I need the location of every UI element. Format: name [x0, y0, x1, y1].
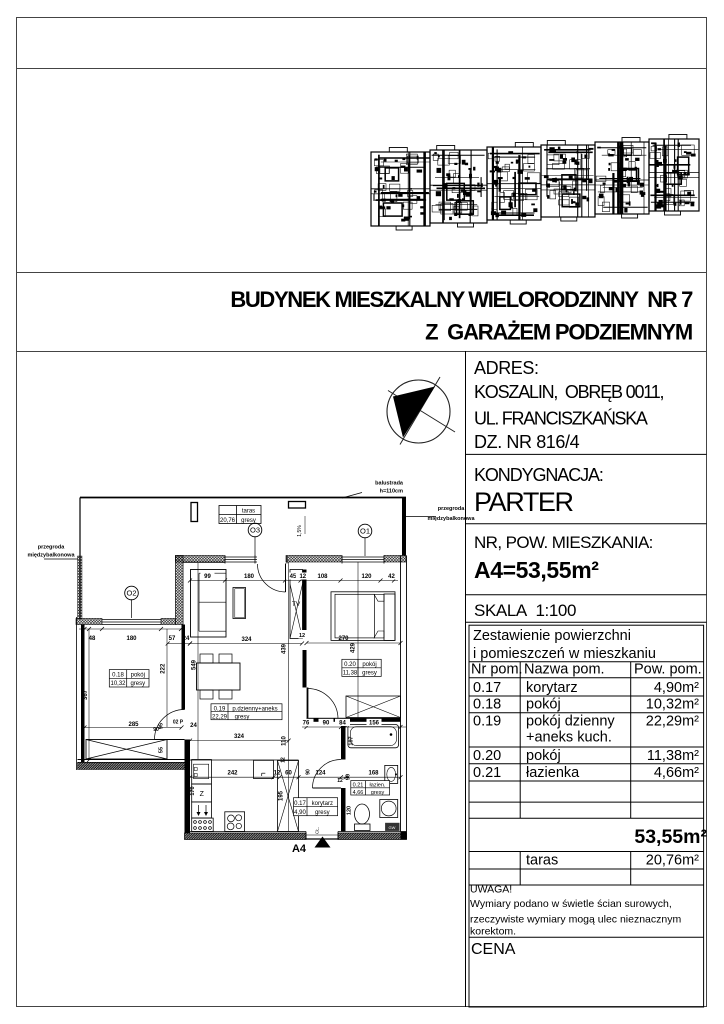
svg-text:11,38: 11,38	[343, 671, 358, 677]
svg-text:53,55m²: 53,55m²	[634, 826, 707, 848]
svg-text:balustrada: balustrada	[375, 481, 404, 487]
svg-text:367: 367	[83, 689, 89, 700]
svg-text:170: 170	[190, 786, 196, 795]
svg-text:12: 12	[281, 757, 287, 763]
svg-text:95: 95	[159, 723, 165, 729]
svg-text:439: 439	[282, 643, 288, 654]
svg-text:42: 42	[388, 574, 395, 580]
svg-text:korektom.: korektom.	[470, 926, 516, 938]
svg-text:22,29m²: 22,29m²	[646, 714, 699, 730]
svg-text:0.17: 0.17	[473, 680, 501, 696]
svg-text:4,90: 4,90	[294, 810, 306, 816]
svg-text:0.19: 0.19	[473, 714, 501, 730]
svg-text:1,5%: 1,5%	[297, 525, 303, 537]
svg-text:4,90m²: 4,90m²	[654, 680, 699, 696]
svg-text:120: 120	[361, 574, 372, 580]
svg-text:0.18: 0.18	[473, 697, 501, 713]
svg-text:gresy: gresy	[362, 671, 377, 677]
svg-text:10,32: 10,32	[110, 681, 126, 687]
svg-text:24: 24	[190, 723, 197, 729]
svg-text:gresy: gresy	[235, 714, 250, 720]
svg-text:BUDYNEK MIESZKALNY WIELORODZIN: BUDYNEK MIESZKALNY WIELORODZINNY NR 7	[230, 287, 693, 312]
svg-text:0.21: 0.21	[353, 782, 364, 788]
svg-text:124: 124	[315, 771, 326, 777]
svg-text:korytarz: korytarz	[526, 680, 578, 696]
svg-text:CŁ.: CŁ.	[315, 827, 320, 834]
svg-text:pokój: pokój	[526, 697, 561, 713]
svg-text:108: 108	[317, 574, 328, 580]
svg-text:pokój: pokój	[131, 673, 145, 679]
svg-text:KOSZALIN, OBRĘB 0011,: KOSZALIN, OBRĘB 0011,	[474, 382, 664, 402]
svg-text:55: 55	[159, 747, 165, 753]
svg-text:pokój: pokój	[362, 662, 376, 668]
svg-text:222: 222	[161, 663, 167, 674]
svg-text:84: 84	[339, 721, 346, 727]
svg-text:120: 120	[347, 806, 353, 815]
svg-text:rzeczywiste wymiary mogą ulec: rzeczywiste wymiary mogą ulec nieznaczny…	[470, 914, 681, 926]
svg-text:Z GARAŻEM PODZIEMNYM: Z GARAŻEM PODZIEMNYM	[425, 320, 692, 345]
svg-text:4,66: 4,66	[353, 790, 364, 796]
svg-text:242: 242	[227, 771, 238, 777]
svg-text:CENA: CENA	[471, 941, 516, 958]
svg-text:02 P: 02 P	[173, 720, 184, 726]
svg-text:90: 90	[153, 727, 159, 733]
svg-text:NR, POW. MIESZKANIA:: NR, POW. MIESZKANIA:	[474, 533, 653, 552]
svg-text:180: 180	[126, 636, 137, 642]
svg-text:0.17: 0.17	[294, 801, 306, 807]
svg-text:168: 168	[368, 771, 379, 777]
svg-text:taras: taras	[526, 853, 558, 869]
svg-text:20,76m²: 20,76m²	[646, 853, 699, 869]
svg-text:4,66m²: 4,66m²	[654, 765, 699, 781]
svg-text:DZ. NR 816/4: DZ. NR 816/4	[474, 432, 580, 452]
svg-text:90: 90	[306, 769, 312, 775]
svg-text:324: 324	[234, 734, 245, 740]
svg-text:107: 107	[349, 736, 355, 745]
svg-text:O1: O1	[360, 527, 370, 536]
svg-text:90: 90	[323, 721, 330, 727]
svg-text:549: 549	[191, 659, 197, 670]
svg-text:0.20: 0.20	[473, 748, 501, 764]
svg-text:270: 270	[338, 636, 349, 642]
svg-text:324: 324	[241, 637, 252, 643]
svg-text:p.dzienny+aneks: p.dzienny+aneks	[232, 706, 277, 712]
svg-text:429: 429	[351, 642, 357, 653]
svg-text:Pow. pom.: Pow. pom.	[634, 662, 702, 678]
svg-text:0.21: 0.21	[473, 765, 501, 781]
svg-text:pokój dzienny: pokój dzienny	[526, 714, 615, 730]
svg-text:międzybalkonowa: międzybalkonowa	[427, 516, 475, 522]
svg-text:A4: A4	[292, 843, 307, 855]
svg-text:UWAGA!: UWAGA!	[470, 884, 512, 896]
svg-text:10,32m²: 10,32m²	[646, 697, 699, 713]
svg-text:57: 57	[169, 636, 176, 642]
svg-text:180: 180	[244, 574, 255, 580]
svg-text:99: 99	[204, 574, 211, 580]
svg-text:0.19: 0.19	[214, 706, 226, 712]
svg-text:Nazwa pom.: Nazwa pom.	[524, 662, 605, 678]
svg-text:0.18: 0.18	[112, 673, 124, 679]
svg-text:O3: O3	[250, 526, 260, 535]
svg-text:KONDYGNACJA:: KONDYGNACJA:	[474, 465, 603, 485]
svg-text:gresy: gresy	[371, 790, 385, 796]
svg-text:Zestawienie powierzchni: Zestawienie powierzchni	[473, 628, 631, 644]
svg-text:SKALA 1:100: SKALA 1:100	[474, 601, 576, 620]
svg-text:TV: TV	[292, 601, 301, 608]
svg-text:12: 12	[299, 574, 306, 580]
svg-text:PARTER: PARTER	[474, 487, 574, 517]
svg-text:i pomieszczeń w mieszkaniu: i pomieszczeń w mieszkaniu	[473, 646, 656, 662]
svg-text:Nr pom.: Nr pom.	[471, 662, 523, 678]
svg-text:taras: taras	[242, 509, 255, 515]
svg-text:12: 12	[274, 771, 281, 777]
svg-text:20,76: 20,76	[220, 518, 236, 524]
svg-text:O2: O2	[126, 589, 136, 598]
svg-text:90: 90	[346, 774, 352, 780]
svg-text:195: 195	[279, 790, 285, 801]
svg-text:h=110cm: h=110cm	[380, 489, 404, 495]
svg-text:156: 156	[369, 721, 380, 727]
svg-text:+aneks kuch.: +aneks kuch.	[526, 730, 612, 746]
svg-text:24: 24	[183, 636, 190, 642]
svg-text:60: 60	[285, 771, 292, 777]
svg-text:Z: Z	[200, 791, 205, 798]
svg-text:48: 48	[89, 636, 96, 642]
svg-text:łazienka: łazienka	[526, 765, 580, 781]
svg-text:Wymiary podano w świetle ścian: Wymiary podano w świetle ścian surowych,	[470, 898, 672, 910]
svg-text:0.20: 0.20	[344, 662, 356, 668]
svg-text:przegroda: przegroda	[438, 506, 466, 512]
svg-text:11,38m²: 11,38m²	[647, 748, 699, 764]
svg-text:12: 12	[337, 778, 343, 784]
svg-text:gresy: gresy	[315, 810, 330, 816]
svg-text:międzybalkonowa: międzybalkonowa	[27, 553, 75, 559]
svg-text:przegroda: przegroda	[38, 545, 66, 551]
svg-text:76: 76	[303, 721, 310, 727]
svg-text:gresy: gresy	[130, 681, 145, 687]
svg-text:12: 12	[299, 633, 305, 639]
svg-text:22,29: 22,29	[212, 714, 228, 720]
svg-text:ADRES:: ADRES:	[474, 358, 539, 378]
svg-text:korytarz: korytarz	[312, 801, 333, 807]
svg-text:UL. FRANCISZKAŃSKA: UL. FRANCISZKAŃSKA	[474, 409, 648, 429]
svg-text:GW: GW	[389, 825, 396, 830]
svg-text:pokój: pokój	[526, 748, 561, 764]
svg-text:A4=53,55m²: A4=53,55m²	[474, 557, 599, 583]
svg-text:łazien.: łazien.	[370, 782, 386, 788]
svg-text:285: 285	[128, 722, 139, 728]
